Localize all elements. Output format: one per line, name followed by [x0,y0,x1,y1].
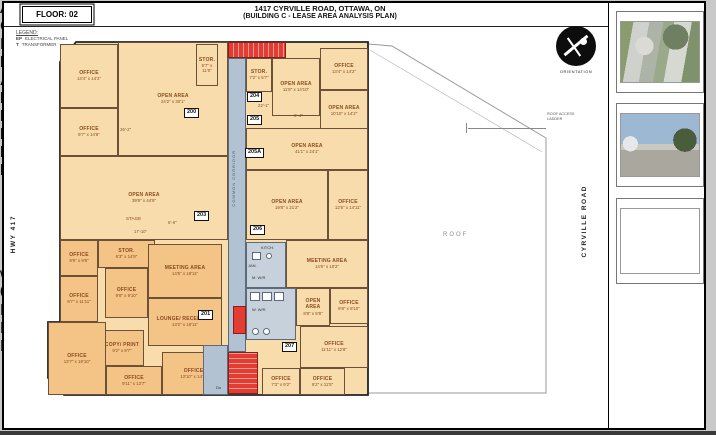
room-number-tag: 200 [184,108,199,118]
compass-dot [580,38,587,45]
room-number-tag: 205 [247,115,262,125]
room-number-tag: 207 [282,342,297,352]
corridor-label: COMMON CORRIDOR [231,150,236,207]
road-label-cyrville: CYRVILLE ROAD [581,185,588,257]
dimension-label: 6'-4" [294,114,303,118]
dimension-label: 6'-6" [168,221,177,225]
orientation-label: ORIENTATION [544,69,608,74]
small-plan-label: M. W/R [252,276,265,280]
dimension-label: 36'-2" [120,128,131,132]
room-number-tag: 201 [198,310,213,320]
scanned-floor-plan-sheet: FLOOR: 02 1417 CYRVILLE ROAD, OTTAWA, ON… [0,0,716,435]
ladder-leader-line [468,128,546,129]
ladder-leader-tick [466,123,467,133]
room-number-tag: 205A [245,148,264,158]
road-label-hwy417: HWY 417 [10,215,17,253]
small-plan-label: JAN. [248,264,257,268]
small-plan-label: W. W/R [252,308,266,312]
small-plan-label: KITCH. [261,246,274,250]
stage-dimension: 17'-10" [134,229,147,234]
dimension-label: 22'-1" [258,104,269,108]
orientation-compass-icon [556,26,596,66]
room-number-tag: 206 [250,225,265,235]
roof-access-ladder-note: ROOF ACCESS LADDER [547,112,577,121]
room-number-tag: 203 [194,211,209,221]
roof-label: ROOF [443,232,468,238]
small-plan-label: Dn [216,386,221,390]
annotation-layer: HWY 417 CYRVILLE ROAD COMMON CORRIDOR RO… [0,0,716,435]
room-number-tag: 204 [247,92,262,102]
stage-label: STAGE [126,216,141,221]
